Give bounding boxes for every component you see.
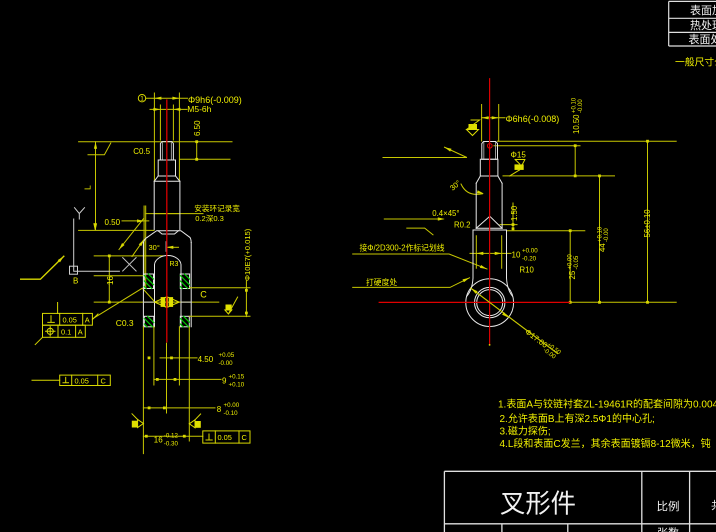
svg-text:1: 1: [140, 96, 144, 103]
svg-text:0.05: 0.05: [63, 316, 77, 325]
svg-text:9: 9: [222, 376, 227, 385]
svg-text:+0.10: +0.10: [572, 97, 578, 113]
svg-text:0.50: 0.50: [105, 218, 121, 227]
svg-text:热处理: 热处理: [690, 19, 716, 32]
svg-text:接Φ/2D300-2作标记划线: 接Φ/2D300-2作标记划线: [360, 243, 445, 253]
svg-text:C0.5: C0.5: [133, 147, 150, 156]
svg-text:16: 16: [106, 276, 115, 285]
svg-text:M5-6h: M5-6h: [187, 104, 211, 114]
svg-text:L: L: [83, 185, 93, 190]
svg-text:16: 16: [154, 435, 163, 444]
svg-text:比例: 比例: [657, 499, 680, 513]
svg-text:+0.00: +0.00: [522, 248, 538, 255]
svg-text:Φ10E7(+0.015): Φ10E7(+0.015): [243, 228, 252, 281]
svg-text:-0.00: -0.00: [604, 228, 610, 242]
svg-text:R3: R3: [170, 261, 179, 268]
svg-text:56±0.10: 56±0.10: [643, 209, 652, 238]
svg-text:C: C: [242, 433, 248, 442]
svg-text:10.50: 10.50: [572, 114, 581, 134]
svg-text:R0.2: R0.2: [454, 220, 470, 229]
svg-text:+0.10: +0.10: [229, 382, 245, 389]
svg-text:44: 44: [598, 243, 607, 252]
svg-text:张数: 张数: [657, 527, 679, 532]
svg-text:-0.30: -0.30: [164, 440, 179, 447]
svg-text:+0.15: +0.15: [229, 374, 245, 381]
svg-text:1.50: 1.50: [510, 205, 519, 221]
svg-text:-0.00: -0.00: [219, 360, 234, 367]
svg-text:25: 25: [568, 270, 577, 279]
svg-text:0.05: 0.05: [218, 433, 232, 442]
svg-text:共: 共: [711, 499, 716, 512]
svg-text:C: C: [101, 376, 107, 385]
svg-text:表面处理: 表面处理: [689, 32, 716, 46]
svg-text:-0.20: -0.20: [522, 256, 537, 263]
svg-text:2.允许表面B上有深2.5Φ1的中心孔;: 2.允许表面B上有深2.5Φ1的中心孔;: [500, 412, 655, 425]
svg-text:0.05: 0.05: [75, 376, 89, 385]
svg-text:4.L段和表面C发兰，其余表面镀镉8-12微米，钝: 4.L段和表面C发兰，其余表面镀镉8-12微米，钝: [500, 437, 711, 450]
svg-text:B: B: [73, 277, 78, 286]
svg-text:0.2深0.3: 0.2深0.3: [195, 214, 224, 223]
svg-text:C0.3: C0.3: [116, 318, 134, 328]
svg-text:一般尺寸公差: 一般尺寸公差: [675, 56, 716, 69]
svg-text:1.表面A与铰链衬套ZL-19461R的配套间隙为0.004: 1.表面A与铰链衬套ZL-19461R的配套间隙为0.004: [498, 397, 716, 410]
svg-text:-0.10: -0.10: [224, 410, 239, 417]
svg-text:R10: R10: [520, 265, 535, 274]
svg-text:叉形件: 叉形件: [500, 489, 576, 519]
svg-text:+0.00: +0.00: [224, 402, 240, 409]
svg-text:A: A: [78, 328, 83, 337]
svg-text:打硬度处: 打硬度处: [366, 277, 397, 287]
svg-text:3.磁力探伤;: 3.磁力探伤;: [500, 425, 551, 438]
svg-text:+0.00: +0.00: [568, 254, 574, 270]
svg-text:A: A: [85, 316, 90, 325]
svg-text:Φ6h6(-0.008): Φ6h6(-0.008): [506, 114, 560, 124]
svg-text:Φ15: Φ15: [511, 150, 527, 159]
svg-text:4.50: 4.50: [198, 355, 214, 364]
svg-text:30°: 30°: [149, 243, 160, 252]
svg-text:6.50: 6.50: [193, 120, 202, 136]
svg-text:8: 8: [217, 405, 222, 414]
svg-text:-0.00: -0.00: [578, 99, 584, 113]
svg-text:-0.05: -0.05: [574, 255, 580, 269]
svg-text:C: C: [200, 289, 207, 299]
svg-text:10: 10: [512, 250, 521, 259]
svg-text:表面加工: 表面加工: [690, 3, 716, 17]
svg-text:0.1: 0.1: [61, 328, 71, 337]
svg-text:+0.10: +0.10: [598, 226, 604, 242]
svg-text:-0.12: -0.12: [164, 432, 179, 439]
svg-text:0.4×45°: 0.4×45°: [432, 209, 459, 218]
svg-text:+0.05: +0.05: [219, 352, 235, 359]
svg-text:安装环记录宽: 安装环记录宽: [194, 203, 240, 213]
